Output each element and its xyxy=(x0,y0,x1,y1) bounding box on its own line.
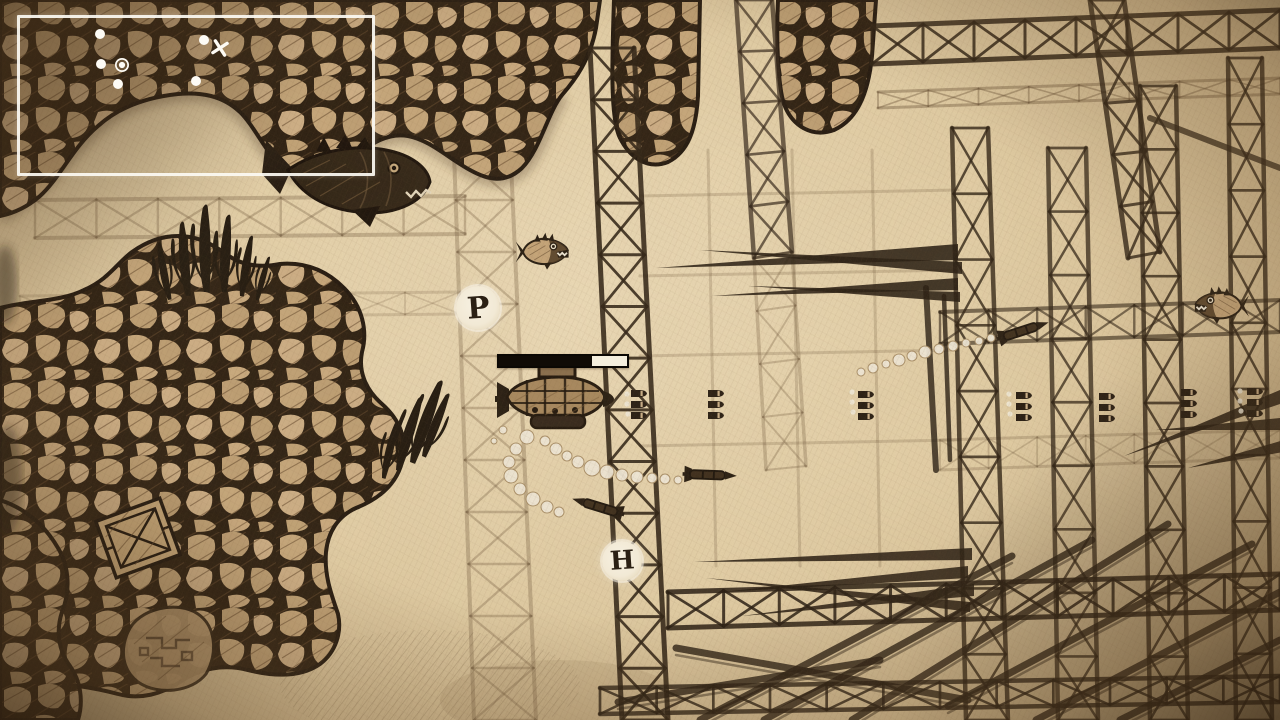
minimap-dot-marker xyxy=(95,29,105,39)
powerup-badge-p: P xyxy=(456,286,500,330)
minimap-markers xyxy=(20,18,372,173)
minimap-dot-marker xyxy=(199,35,209,45)
minimap-dot-marker xyxy=(96,59,106,69)
minimap xyxy=(17,15,375,176)
player-health-bar xyxy=(497,354,629,368)
powerup-letter-p: P xyxy=(466,290,491,326)
powerup-badge-h: H xyxy=(602,541,642,581)
powerup-letter-h: H xyxy=(609,545,636,577)
game-viewport[interactable]: P H xyxy=(0,0,1280,720)
minimap-cross-marker xyxy=(213,41,227,55)
minimap-dot-marker xyxy=(191,76,201,86)
minimap-dot-marker xyxy=(113,79,123,89)
player-health-fill xyxy=(499,356,592,366)
